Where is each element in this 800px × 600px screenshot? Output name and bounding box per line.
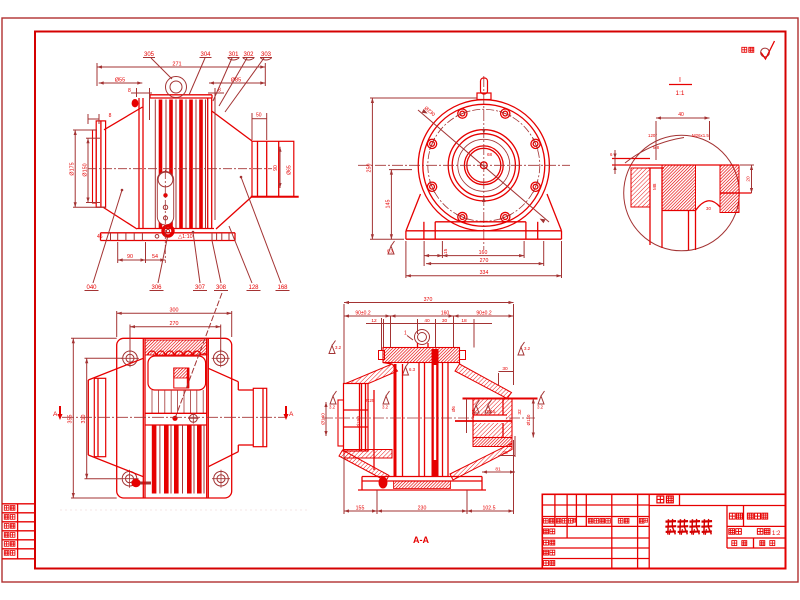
svg-text:102.5: 102.5	[483, 505, 496, 511]
svg-text:30: 30	[502, 366, 508, 372]
svg-text:271: 271	[172, 62, 181, 68]
svg-text:1: 1	[404, 331, 407, 337]
svg-text:334: 334	[480, 270, 489, 276]
svg-text:Ø190: Ø190	[356, 416, 362, 428]
svg-text:3.2: 3.2	[335, 345, 342, 350]
svg-text:30: 30	[442, 318, 448, 324]
svg-text:370: 370	[424, 297, 433, 303]
svg-text:Ø175: Ø175	[70, 162, 76, 175]
svg-text:M26x1.5: M26x1.5	[692, 133, 709, 138]
svg-text:3.2: 3.2	[537, 405, 544, 410]
svg-text:30: 30	[706, 206, 711, 211]
svg-text:230: 230	[418, 505, 427, 511]
svg-text:90±0.2: 90±0.2	[476, 310, 491, 316]
svg-text:△1:10: △1:10	[178, 234, 193, 240]
svg-text:1:2: 1:2	[772, 531, 781, 537]
svg-text:50: 50	[256, 113, 262, 119]
svg-text:I: I	[679, 77, 681, 84]
svg-text:12: 12	[371, 318, 377, 324]
svg-text:68: 68	[487, 152, 493, 157]
svg-text:270: 270	[170, 321, 179, 327]
svg-text:155: 155	[356, 505, 365, 511]
svg-text:A: A	[289, 411, 294, 418]
svg-text:145: 145	[386, 200, 392, 209]
svg-text:90: 90	[127, 254, 133, 260]
svg-text:15: 15	[443, 248, 449, 254]
svg-text:Ø140: Ø140	[321, 413, 327, 425]
svg-text:300: 300	[170, 308, 179, 314]
svg-text:54: 54	[152, 254, 158, 260]
svg-text:310: 310	[81, 415, 87, 424]
svg-text:3.2: 3.2	[382, 405, 389, 410]
svg-text:20: 20	[746, 176, 752, 182]
svg-text:6.3: 6.3	[387, 249, 393, 254]
svg-text:6.3: 6.3	[409, 367, 416, 372]
svg-text:Ø6: Ø6	[451, 406, 456, 412]
svg-text:3.2: 3.2	[524, 346, 531, 351]
svg-text:250: 250	[367, 164, 373, 173]
svg-text:25: 25	[502, 450, 508, 456]
svg-text:270: 270	[480, 258, 489, 264]
svg-text:45: 45	[97, 234, 103, 240]
svg-text:90: 90	[273, 165, 279, 171]
svg-text:M8: M8	[652, 183, 657, 190]
svg-text:1:1: 1:1	[676, 90, 685, 97]
svg-text:355: 355	[68, 415, 74, 424]
svg-text:90±0.2: 90±0.2	[355, 310, 370, 316]
svg-text:Ø55: Ø55	[115, 78, 126, 84]
svg-text:40: 40	[678, 112, 684, 118]
svg-text:A-A: A-A	[413, 535, 429, 545]
svg-text:Ø150: Ø150	[82, 163, 88, 176]
svg-text:3.2: 3.2	[329, 405, 336, 410]
svg-text:160: 160	[479, 250, 488, 256]
svg-text:81: 81	[495, 466, 501, 472]
svg-text:18: 18	[461, 318, 467, 324]
svg-text:32: 32	[471, 409, 477, 415]
svg-text:Ø65: Ø65	[287, 165, 293, 175]
svg-text:R25: R25	[366, 398, 375, 403]
svg-text:8: 8	[109, 113, 112, 119]
svg-text:160: 160	[441, 310, 450, 316]
svg-text:A: A	[53, 411, 58, 418]
svg-text:32: 32	[517, 409, 523, 415]
svg-text:8: 8	[128, 88, 131, 94]
svg-text:40: 40	[424, 318, 430, 324]
svg-text:Ø110: Ø110	[526, 414, 531, 425]
